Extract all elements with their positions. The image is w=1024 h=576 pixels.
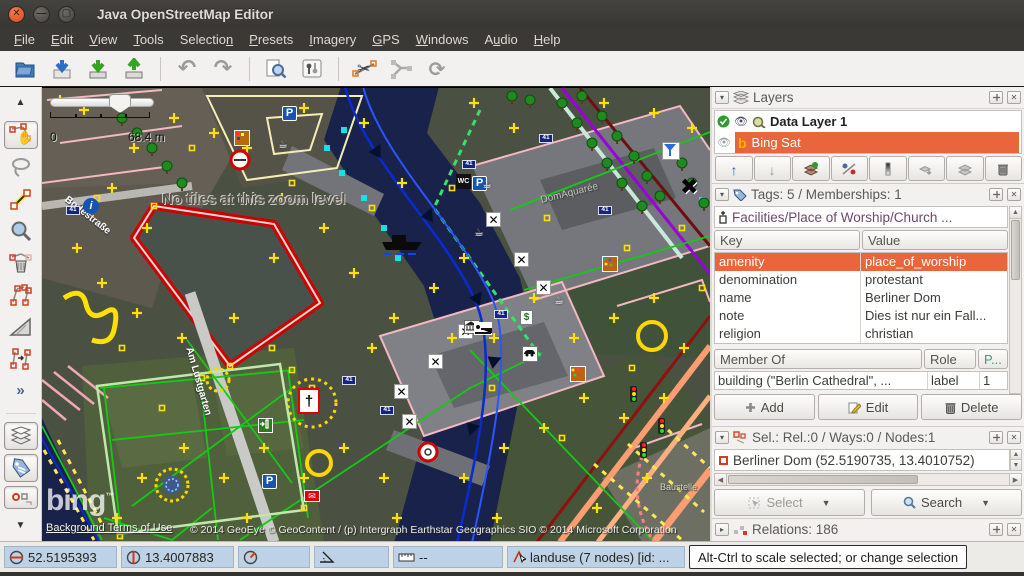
split-way-icon[interactable]: ✂ [348,54,382,84]
tag-row-name[interactable]: nameBerliner Dom [715,289,1007,307]
distance-field: -- [393,546,503,568]
delete-layer-icon [995,161,1011,177]
window-frame-bottom [0,572,1024,576]
combine-way-icon[interactable] [384,54,418,84]
restaurant-icon: ✕ [428,354,443,369]
tag-row-amenity[interactable]: amenityplace_of_worship [715,253,1007,271]
membership-row[interactable]: building ("Berlin Cathedral", ... label … [714,371,1008,390]
josm-window: ✕ — ▢ Java OpenStreetMap Editor FileEdit… [0,0,1024,576]
closed-marker-icon: ✖ [680,176,698,198]
lasso-tool-icon[interactable] [4,153,38,181]
menu-file[interactable]: File [6,29,43,50]
selection-spinner[interactable]: ▲▼ [1010,449,1022,471]
move-layer-down-button[interactable]: ↓ [754,156,792,181]
scroll-up-icon[interactable]: ▲ [4,89,38,117]
layers-panel-header: ▾ Layers ✕ [712,87,1024,109]
delete-layer-button[interactable] [985,156,1023,181]
church-preset-icon [718,210,728,224]
select-button[interactable]: Select ▼ [714,489,865,516]
restaurant-icon: ✕ [486,212,501,227]
speed-badge: 41 [539,134,553,143]
search-button[interactable]: Search ▼ [871,489,1022,516]
sticky-pin-icon[interactable] [989,523,1003,536]
restaurant-icon: ✕ [536,280,551,295]
svg-text:✂: ✂ [357,61,370,78]
sticky-pin-icon[interactable] [989,431,1003,444]
restaurant-icon: ✕ [514,252,529,267]
tag-row-note[interactable]: noteDies ist nur ein Fall... [715,307,1007,325]
status-help-message: Alt-Ctrl to scale selected; or change se… [689,545,967,569]
layers-toggle-icon[interactable] [4,422,38,450]
restaurant-icon: ✕ [394,384,409,399]
angle-field [314,546,389,568]
collapse-icon[interactable]: ▾ [715,188,729,201]
merge-layer-icon [803,161,819,177]
latitude-icon [9,550,24,565]
value-column-header[interactable]: Value [862,230,1008,250]
cafe-icon: ☕ [554,296,564,307]
restaurant-icon: ✕ [402,414,417,429]
window-title: Java OpenStreetMap Editor [97,7,273,22]
relation-icon [733,524,748,536]
opacity-button[interactable] [869,156,907,181]
sticky-pin-icon[interactable] [989,188,1003,201]
longitude-icon [126,550,141,565]
tag-key: amenity [715,253,861,271]
menu-gps[interactable]: GPS [364,29,407,50]
more-tools-icon[interactable]: » [4,377,38,405]
filter-funnel-icon [662,142,680,160]
draw-nodes-tool-icon[interactable] [4,185,38,213]
tag-value: christian [861,325,1007,343]
menu-selection[interactable]: Selection [172,29,241,50]
menu-help[interactable]: Help [526,29,569,50]
delete-tool-icon[interactable] [4,249,38,277]
download-data-icon[interactable] [45,54,79,84]
unglue-tool-icon[interactable] [4,281,38,309]
shop-icon [602,256,618,272]
area-label-baustelle: Baustelle [660,482,697,492]
close-panel-icon[interactable]: ✕ [1007,431,1021,444]
plus-icon [745,402,756,413]
heading-icon [243,550,258,565]
merge-layer-button[interactable] [792,156,830,181]
traffic-signal-icon [640,442,647,458]
move-layer-down-icon: ↓ [764,161,780,177]
search-icon [903,496,916,509]
object-info-field: landuse (7 nodes) [id: ... [507,546,685,568]
layer-name: Data Layer 1 [770,114,847,129]
tag-row-denomination[interactable]: denominationprotestant [715,271,1007,289]
toggle-visibility-icon [841,161,857,177]
background-terms-link[interactable]: Background Terms of Use [46,522,172,534]
tags-vertical-scrollbar[interactable]: ▲ ▼ [1009,206,1022,406]
visibility-eye-icon[interactable]: 👁 [717,136,731,149]
church-berliner-dom-icon[interactable]: † [298,388,320,414]
svg-text:✋: ✋ [17,130,33,145]
redo-icon[interactable]: ↷ [206,54,240,84]
pencil-icon [848,401,861,414]
member-role: label [927,372,979,389]
selection-list-item[interactable]: Berliner Dom (52.5190735, 13.4010752) [714,449,1010,471]
selection-toggle-icon[interactable] [4,486,38,509]
imagery-copyright: © 2014 GeoEye © GeoContent / (p) Intergr… [190,524,710,536]
scroll-up-arrow[interactable]: ▲ [1010,207,1021,219]
expand-icon[interactable]: ▸ [715,523,729,536]
cafe-icon: ☕ [482,180,492,191]
scale-max-label: 68.4 m [128,130,165,144]
menu-audio[interactable]: Audio [476,29,525,50]
edit-tag-button[interactable]: Edit [818,394,919,420]
speed-badge: 41 [342,376,356,385]
scale-bar [50,112,150,118]
selected-object-label: Berliner Dom (52.5190735, 13.4010752) [733,453,975,468]
latitude-field: 52.5195393 [4,546,117,568]
info-icon: i [83,198,99,214]
main-toolbar: ↶ ↷ ✂ ⟳ [0,51,1024,87]
speed-badge: 41 [66,206,80,215]
tag-value: place_of_worship [861,253,1007,271]
sticky-pin-icon[interactable] [989,91,1003,104]
layer-row-bing-sat[interactable]: 👁 b Bing Sat [715,132,1021,153]
delete-tag-button[interactable]: Delete [921,394,1022,420]
menu-tools[interactable]: Tools [125,29,171,50]
speed-badge: 41 [494,310,508,319]
layer-row-data-layer[interactable]: 👁 Data Layer 1 [715,111,1021,132]
tag-value: protestant [861,271,1007,289]
data-layer-icon [752,116,766,128]
role-column-header[interactable]: Role [924,349,976,369]
duplicate-layer-icon [918,161,934,177]
post-box-icon: ✉ [304,490,320,502]
visibility-eye-icon[interactable]: 👁 [734,115,748,128]
cafe-icon: ☕ [474,228,484,239]
menu-windows[interactable]: Windows [408,29,477,50]
tag-icon [733,188,747,201]
preferences-icon[interactable] [295,54,329,84]
bing-logo: bing™ [46,484,113,518]
preset-link[interactable]: Facilities/Place of Worship/Church ... [732,210,952,225]
minimize-window-button[interactable]: — [33,6,50,23]
gate-icon [258,418,273,433]
move-layer-up-button[interactable]: ↑ [715,156,753,181]
tags-toggle-icon[interactable] [4,454,38,482]
wc-icon: WC [456,174,471,189]
hover-object-icon [512,550,526,564]
opacity-icon [880,161,896,177]
bank-icon: $ [520,310,533,325]
upload-icon[interactable] [117,54,151,84]
traffic-signal-icon [630,386,637,402]
status-bar: 52.5195393 13.4007883 -- landuse (7 node… [0,541,1024,572]
parallel-tool-icon[interactable] [4,345,38,373]
tag-key: religion [715,325,861,343]
speed-badge: 41 [380,406,394,415]
zoom-tool-icon[interactable] [4,217,38,245]
zoom-slider[interactable] [50,98,154,107]
playground-icon [234,130,250,146]
select-tool-icon[interactable]: ✋ [4,121,38,149]
shop-icon [570,366,586,382]
traffic-signal-icon [658,418,665,434]
speed-badge: 41 [598,206,612,215]
zoom-slider-thumb[interactable] [109,94,131,113]
search-presets-icon[interactable] [259,54,293,84]
tag-row-religion[interactable]: religionchristian [715,325,1007,343]
close-window-button[interactable]: ✕ [8,6,25,23]
menu-edit[interactable]: Edit [43,29,81,50]
speed-badge: 41 [462,160,476,169]
add-tag-button[interactable]: Add [714,394,815,420]
menu-imagery[interactable]: Imagery [301,29,364,50]
layer-actions-toolbar: ↑↓ [714,156,1022,181]
layers-icon [733,91,749,104]
tag-value: Berliner Dom [861,289,1007,307]
heading-field [238,546,310,568]
member-of-column-header[interactable]: Member Of [714,349,922,369]
tag-key: name [715,289,861,307]
toggle-visibility-button[interactable] [831,156,869,181]
scale-min-label: 0 [50,130,57,144]
ruler-icon [398,552,415,562]
svg-text:↓: ↓ [769,162,776,177]
cursor-select-icon [748,497,761,509]
dropdown-arrow-icon: ▼ [981,498,990,508]
tags-table: amenityplace_of_worshipdenominationprote… [714,252,1008,344]
scroll-down-icon[interactable]: ▼ [4,511,38,539]
merge-down-icon [957,161,973,177]
title-bar: ✕ — ▢ Java OpenStreetMap Editor [0,0,1024,28]
dropdown-arrow-icon: ▼ [822,498,831,508]
layer-name: Bing Sat [752,135,801,150]
close-panel-icon[interactable]: ✕ [1007,91,1021,104]
collapse-icon[interactable]: ▾ [715,91,729,104]
cafe-icon: ☕ [278,140,288,151]
longitude-field: 13.4007883 [121,546,234,568]
zoom-scale-widget: 0 68.4 m [50,98,210,118]
menu-presets[interactable]: Presets [241,29,301,50]
tag-key: note [715,307,861,325]
no-tiles-message: No tiles at this zoom level [162,191,345,208]
member-position: 1 [979,372,1007,389]
member-relation: building ("Berlin Cathedral", ... [715,372,927,389]
relations-panel-title: Relations: 186 [752,522,985,537]
tag-key: denomination [715,271,861,289]
trash-icon [945,401,956,414]
extrude-tool-icon[interactable] [4,313,38,341]
svg-text:↑: ↑ [730,162,737,177]
selection-horizontal-scrollbar[interactable]: ◀ ▶ [714,473,1022,486]
menu-view[interactable]: View [81,29,125,50]
selection-panel-title: Sel.: Rel.:0 / Ways:0 / Nodes:1 [752,430,985,445]
angle-icon [319,550,335,564]
selection-icon [733,431,748,444]
undo-icon[interactable]: ↶ [170,54,204,84]
map-canvas[interactable]: 0 68.4 m No tiles at this zoom level Bod… [42,87,710,541]
position-column-header[interactable]: P... [978,349,1008,369]
parking-icon: P [262,474,277,489]
menu-bar: FileEditViewToolsSelectionPresetsImagery… [0,28,1024,51]
layers-panel-title: Layers [753,90,985,105]
move-layer-up-icon: ↑ [726,161,742,177]
update-data-icon[interactable]: ⟳ [420,54,454,84]
maximize-window-button[interactable]: ▢ [58,6,75,23]
key-column-header[interactable]: Key [714,230,860,250]
close-panel-icon[interactable]: ✕ [1007,188,1021,201]
save-icon[interactable] [81,54,115,84]
collapse-icon[interactable]: ▾ [715,431,729,444]
merge-down-button[interactable] [946,156,984,181]
duplicate-layer-button[interactable] [908,156,946,181]
taxi-icon [522,346,538,362]
tag-value: Dies ist nur ein Fall... [861,307,1007,325]
active-layer-check-icon [717,115,730,128]
node-icon [719,456,728,465]
bing-layer-icon: b [738,135,747,151]
tags-panel-title: Tags: 5 / Memberships: 1 [751,187,985,202]
dock-panels: ▾ Layers ✕ 👁 Data Layer 1 👁 b Bing Sat ↑… [712,87,1024,541]
parking-icon: P [282,106,297,121]
close-panel-icon[interactable]: ✕ [1007,523,1021,536]
open-icon[interactable] [9,54,43,84]
edit-tool-sidebar: ▲ ✋ » ▼ [0,87,42,541]
